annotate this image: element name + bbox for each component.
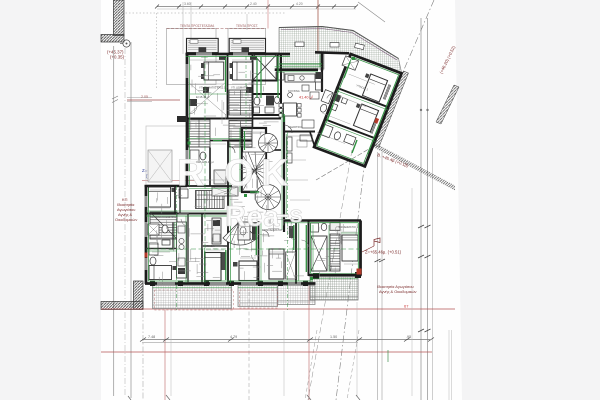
- svg-text:ΥΠ. ΔΩΜΑΤΙΟ Ε=12.1μ²: ΥΠ. ΔΩΜΑΤΙΟ Ε=12.1μ²: [199, 86, 228, 90]
- svg-text:2.40: 2.40: [250, 2, 257, 6]
- svg-text:ΚΟΥΖΙΝΑ: ΚΟΥΖΙΝΑ: [288, 89, 300, 93]
- svg-text:ΚΟΥΖΙΝΑ ΚΑΘΙΣΤΙΚΟ: ΚΟΥΖΙΝΑ ΚΑΘΙΣΤΙΚΟ: [150, 215, 176, 219]
- svg-text:4.79: 4.79: [230, 335, 237, 339]
- svg-text:(+0.35): (+0.35): [110, 55, 125, 60]
- svg-text:Αγνής & Οικοδομικών: Αγνής & Οικοδομικών: [379, 289, 417, 294]
- svg-text:Οικοδομικών: Οικοδομικών: [115, 217, 137, 222]
- svg-text:1.50: 1.50: [330, 335, 337, 339]
- svg-text:–s: –s: [276, 202, 303, 229]
- svg-text:ΥΠΝΟΔ.: ΥΠΝΟΔ.: [205, 244, 216, 248]
- svg-text:4.20: 4.20: [296, 2, 303, 6]
- svg-text:2.05: 2.05: [141, 95, 148, 99]
- svg-text:R: R: [177, 153, 204, 195]
- svg-text:ΧΩΛ Ε=9.40 μ²: ΧΩΛ Ε=9.40 μ²: [196, 160, 214, 164]
- svg-text:ΚΑΘΙΣΤΙΚΟ: ΚΑΘΙΣΤΙΚΟ: [288, 125, 302, 129]
- svg-text:ΥΠ. ΔΩΜΑΤΙΟ: ΥΠ. ΔΩΜΑΤΙΟ: [231, 86, 248, 90]
- svg-text:67: 67: [404, 304, 409, 309]
- svg-text:.95: .95: [406, 335, 411, 339]
- svg-text:Ζ=+65.46μ. (+0.51): Ζ=+65.46μ. (+0.51): [365, 250, 402, 255]
- svg-text:ΥΠΝΟΔΩΜΑΤΙΟ: ΥΠΝΟΔΩΜΑΤΙΟ: [262, 228, 282, 232]
- svg-text:ΤΕΝΤΑ ΠΡΟΣΤΕΓΑΣΜΑ: ΤΕΝΤΑ ΠΡΟΣΤΕΓΑΣΜΑ: [180, 24, 215, 28]
- svg-text:ΤΕΝΤΑ ΠΡΟΣΤ.: ΤΕΝΤΑ ΠΡΟΣΤ.: [236, 24, 258, 28]
- svg-text:7.48: 7.48: [148, 335, 155, 339]
- svg-text:41.40 μ²: 41.40 μ²: [299, 96, 314, 100]
- svg-text:ΥΠΝΟΔΩΜΑΤΙΟ 2: ΥΠΝΟΔΩΜΑΤΙΟ 2: [336, 225, 359, 229]
- svg-text:K: K: [261, 153, 289, 195]
- svg-text:Ε=15.40 μ²: Ε=15.40 μ²: [196, 95, 209, 99]
- svg-text:O: O: [224, 153, 254, 195]
- svg-text:3.60: 3.60: [184, 2, 191, 6]
